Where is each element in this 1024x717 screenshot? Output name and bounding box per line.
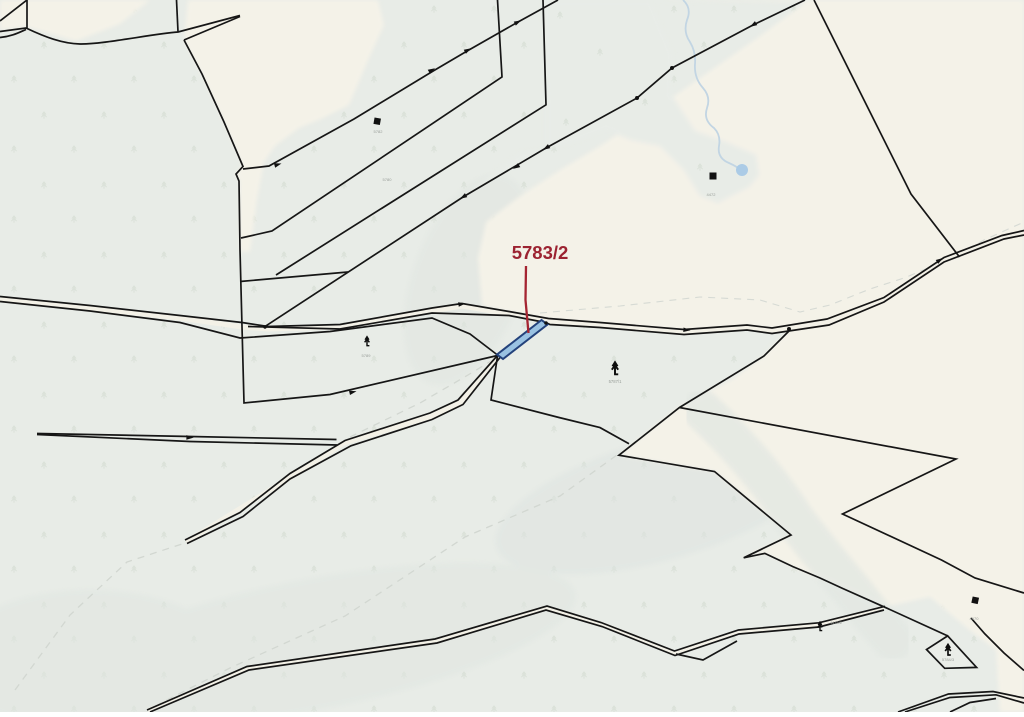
svg-text:4472: 4472 (707, 192, 717, 197)
svg-text:5783/2: 5783/2 (512, 242, 569, 263)
svg-text:5787/1: 5787/1 (609, 379, 622, 384)
svg-text:4970: 4970 (970, 616, 980, 621)
svg-text:5780: 5780 (383, 177, 393, 182)
svg-text:5789: 5789 (362, 353, 372, 358)
svg-text:5784/3: 5784/3 (942, 657, 955, 662)
svg-text:4415/2: 4415/2 (830, 620, 843, 625)
svg-text:5782: 5782 (374, 129, 384, 134)
